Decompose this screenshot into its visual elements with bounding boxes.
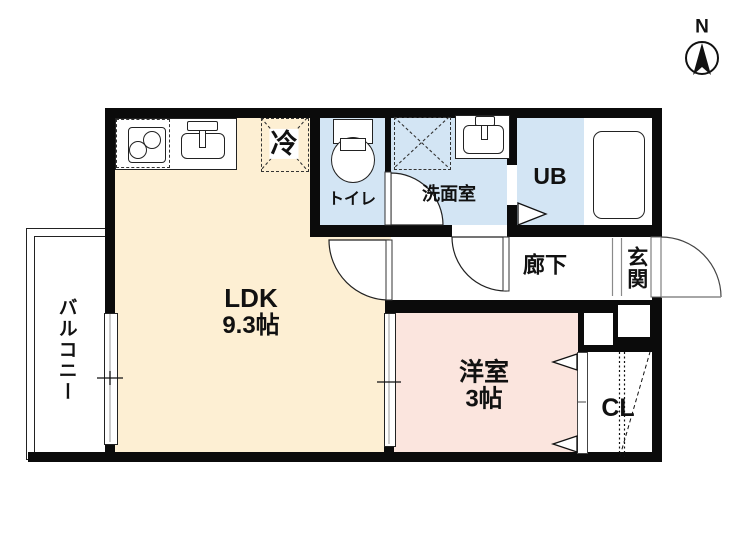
ldk-name: LDK bbox=[222, 284, 279, 313]
western-room-label: 洋室 3帖 bbox=[459, 359, 509, 414]
compass-north-label: N bbox=[695, 16, 709, 37]
hallway-label: 廊下 bbox=[523, 254, 567, 279]
western-room-name: 洋室 bbox=[459, 359, 509, 387]
floor-plan: N LDK 9.3帖 洋室 3帖 トイレ 洗面室 UB 廊下 玄関 バルコニー … bbox=[0, 0, 750, 550]
closet-door bbox=[577, 352, 588, 454]
ldk-size: 9.3帖 bbox=[222, 313, 279, 340]
entrance-label: 玄関 bbox=[624, 246, 648, 290]
refrigerator-label: 冷 bbox=[270, 129, 299, 159]
ldk-label: LDK 9.3帖 bbox=[222, 284, 279, 340]
balcony-label: バルコニー bbox=[55, 298, 76, 403]
bathtub bbox=[593, 131, 645, 219]
closet-label: CL bbox=[601, 394, 634, 422]
western-room-size: 3帖 bbox=[459, 387, 509, 414]
vanity-faucet-stem bbox=[481, 125, 488, 140]
washing-machine-space bbox=[394, 117, 451, 170]
kitchen-faucet-stem bbox=[199, 130, 206, 148]
bath-label: UB bbox=[533, 164, 566, 190]
washroom-label: 洗面室 bbox=[422, 184, 476, 204]
burner-icon bbox=[129, 141, 147, 159]
ldk-western-sliding-door bbox=[384, 313, 396, 447]
balcony-window bbox=[104, 313, 118, 445]
toilet-label: トイレ bbox=[328, 191, 376, 209]
toilet-seat bbox=[340, 138, 366, 151]
